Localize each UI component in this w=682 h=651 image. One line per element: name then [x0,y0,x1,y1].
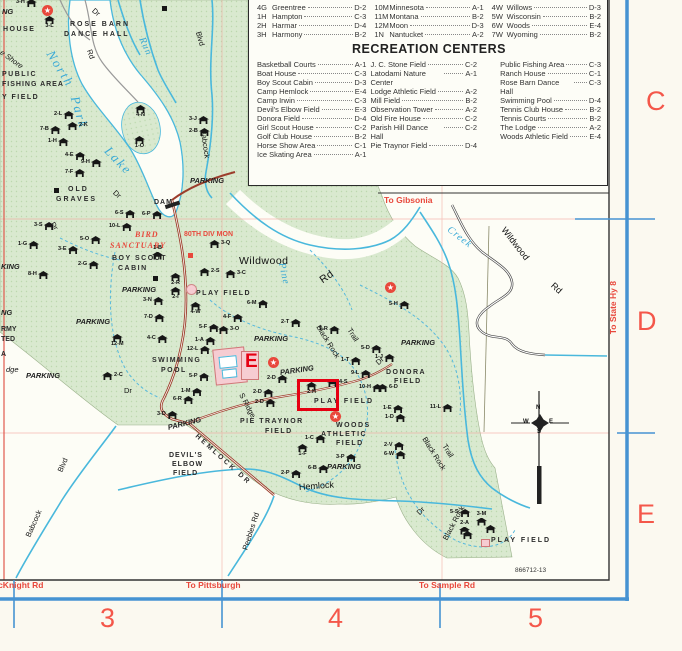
shelter-icon-1-D: 1-D [385,414,406,422]
picnic-shelter-glyph [395,414,406,422]
dot-leader [322,109,353,110]
map-label: TED [1,336,15,343]
shelter-code-label: 9-L [351,371,359,377]
shelter-code-label: 2-V [384,443,393,449]
area-code: 1H [257,12,272,21]
shelter-code-label: 4-F [223,315,231,321]
shelter-code-label: 11-L [430,405,441,411]
map-label: PARKING [122,286,156,294]
dot-leader [308,7,352,8]
shelter-icon-2-C: 2-C [102,372,123,380]
map-label: PIE TRAYNOR [240,418,304,425]
map-label: PUBLIC [2,71,37,78]
facility-name: Basketball Courts [257,60,316,69]
shelter-code-label: 1-F [298,452,306,458]
map-label: RMY [1,326,17,333]
shelter-code-label: 1-O [135,144,144,150]
monument-square-icon [188,253,193,258]
recreation-center-entry: Rose Barn Dance HallC-3 [500,78,601,96]
shelter-icon-3-O: 3-O [218,326,239,334]
map-label: ROSE BARN [70,21,130,28]
shelter-code-label: 3-L [45,24,53,30]
shelter-code-label: 2-R [171,281,180,287]
picnic-shelter-glyph [26,0,37,7]
picnic-shelter-glyph [199,128,210,136]
picnic-shelter-glyph [74,169,85,177]
star-point-of-interest-icon: ★ [268,357,279,368]
shelter-icon-2-S: 2-S [199,268,220,276]
grid-ref: C-2 [354,123,366,132]
shelter-icon-1-F: 1-F [297,444,308,458]
map-label: NG [2,8,13,16]
shelter-code-label: 3-Q [221,241,230,247]
shelter-code-label: 1-T [341,358,349,364]
picnic-shelter-glyph [350,357,361,365]
facility-name: Boy Scout Cabin [257,78,313,87]
picnic-shelter-glyph [58,138,69,146]
shelter-icon-5-F: 5-F [199,324,219,332]
map-label: KING [1,263,20,271]
grid-ref: A-1 [355,60,367,69]
shelter-code-label: 12-L [187,347,198,353]
building-square-icon [54,188,59,193]
legend-index-entry: 10MMinnesotaA-1 [374,3,483,12]
dot-leader [444,73,463,74]
shelter-code-label: 1-H [48,139,57,145]
picnic-shelter-glyph [102,372,113,380]
picnic-shelter-glyph [371,345,382,353]
grid-ref: C-3 [589,78,601,87]
shelter-code-label: 2-K [79,123,88,129]
shelter-code-label: 2-S [211,269,220,275]
highlight-box-shelter-2H[interactable] [297,379,339,411]
area-name: Minnesota [389,3,424,12]
map-label: NG [1,309,12,317]
area-code: 10M [374,3,389,12]
legend-index-entry: 3HHarmonyB-2 [257,30,366,39]
shelter-icon-2-P: 2-P [281,470,302,478]
dot-leader [302,118,352,119]
star-point-of-interest-icon: ★ [330,411,341,422]
shelter-icon-5-H: 5-H [389,301,410,309]
dot-leader [548,73,587,74]
dot-leader [438,91,463,92]
picnic-shelter-glyph [90,236,101,244]
recreation-center-entry: Parish Hill Dance HallC-2 [370,123,477,141]
dot-leader [318,64,353,65]
grid-ref: D-4 [465,141,477,150]
picnic-shelter-glyph [183,396,194,404]
recreation-center-entry: Tennis CourtsB-2 [500,114,601,123]
shelter-icon-1-A: 1-A [195,337,216,345]
area-name: Wyoming [507,30,538,39]
shelter-code-label: 3-H [16,0,25,6]
recreation-center-entry: Golf Club HouseB-2 [257,132,366,141]
picnic-shelter-glyph [154,314,165,322]
recreation-center-entry: Camp HemlockE-4 [257,87,366,96]
shelter-icon-2-D: 2-D [253,389,274,397]
shelter-icon-2-L: 2-L [54,111,74,119]
picnic-shelter-glyph [153,297,164,305]
star-point-of-interest-icon: ★ [42,5,53,16]
shelter-code-label: 6-W [384,452,394,458]
map-label: DEVIL'S [169,452,203,459]
compass-east-label: E [549,419,553,425]
star-point-of-interest-icon: ★ [385,282,396,293]
facility-name: Swimming Pool [500,96,552,105]
grid-ref: D-4 [354,114,366,123]
dot-leader [310,91,353,92]
map-label: ELBOW [172,461,203,468]
legend-index-entry: 12MMoonD-3 [374,21,483,30]
recreation-center-entry: Ranch HouseC-1 [500,69,601,78]
shelter-icon-1-E: 1-E [383,405,404,413]
recreation-center-entry: Public Fishing AreaC-3 [500,60,601,69]
dot-leader [299,25,352,26]
picnic-shelter-glyph [50,126,61,134]
facility-name: Devil's Elbow Field [257,105,320,114]
picnic-shelter-glyph [218,326,229,334]
shelter-code-label: 5-F [199,325,207,331]
dot-leader [421,16,470,17]
facility-name: Old Fire House [370,114,420,123]
picnic-shelter-glyph [290,319,301,327]
map-label: DANCE HALL [64,31,130,38]
facility-name: Tennis Club House [500,105,563,114]
shelter-code-label: 6-P [142,212,151,218]
facility-name: Boat House [257,69,296,78]
area-name: Nantucket [389,30,423,39]
recreation-center-entry: Latodami Nature CenterA-1 [370,69,477,87]
dot-leader [314,136,353,137]
picnic-shelter-glyph [462,531,473,539]
grid-ref: C-3 [354,69,366,78]
picnic-shelter-glyph [377,384,388,392]
shelter-code-label: 6-S [115,211,124,217]
shelter-icon-4-N: 4-N [135,105,146,119]
shelter-icon-3-H: 3-H [16,0,37,7]
recreation-center-entry: The LodgeA-2 [500,123,601,132]
grid-ref: A-1 [472,3,484,12]
dot-leader [423,118,463,119]
shelter-code-label: 2-G [78,262,87,268]
shelter-icon-2-I: 2-I [170,287,181,301]
grid-ref: A-1 [355,150,367,159]
dot-leader [534,7,587,8]
picnic-shelter-glyph [28,241,39,249]
map-label: 80TH DIV MON [184,231,233,238]
facility-name: Latodami Nature Center [370,69,442,87]
grid-ref: D-3 [589,3,601,12]
shelter-code-label: 3-D [157,412,166,418]
shelter-code-label: 2-A [460,521,469,527]
map-label: PARKING [76,318,110,326]
recreation-center-entry: Donora FieldD-4 [257,114,366,123]
dot-leader [410,25,469,26]
grid-ref: A-2 [472,30,484,39]
recreation-center-entry: Pie Traynor FieldD-4 [370,141,477,150]
area-code: 7W [492,30,507,39]
map-label: FIELD [336,440,364,447]
picnic-shelter-glyph [167,411,178,419]
grid-ref: D-3 [472,21,484,30]
shelter-icon-3-S: 3-S [34,222,55,230]
dot-leader [540,34,587,35]
shelter-code-label: 2-T [281,320,289,326]
shelter-code-label: 7-D [144,315,153,321]
area-code: 2H [257,21,272,30]
map-label: dge [6,366,19,374]
picnic-shelter-glyph [460,509,471,517]
map-label: FIELD [265,428,293,435]
shelter-icon-3-D: 3-D [157,411,178,419]
area-code: 12M [374,21,389,30]
dot-leader [314,154,353,155]
grid-ref: B-2 [355,30,367,39]
shelter-code-label: 8-H [28,272,37,278]
shelter-icon-1-T: 1-T [341,357,361,365]
shelter-code-label: 10-H [359,385,371,391]
shelter-icon-7-D: 7-D [144,314,165,322]
map-label: PARKING [26,372,60,380]
shelter-code-label: 1-G [18,242,27,248]
shelter-code-label: 2-I [172,295,178,301]
shelter-icon-3-J: 3-J [189,116,209,124]
picnic-shelter-glyph [277,375,288,383]
shelter-code-label: 5-D [361,346,370,352]
shelter-icon-5-D: 5-D [361,345,382,353]
area-code: 4G [257,3,272,12]
shelter-icon-1-B: 1-B [152,246,163,260]
legend-index-entry: 1NNantucketA-2 [374,30,483,39]
dot-leader [554,100,587,101]
shelter-code-label: 1-E [383,406,392,412]
building-square-icon [153,276,158,281]
legend-index-entry: 11MMontanaB-2 [374,12,483,21]
shelter-icon-5-O: 5-O [80,236,101,244]
grid-ref: C-3 [354,12,366,21]
dot-leader [298,73,352,74]
shelter-code-label: 9-H [81,160,90,166]
facility-name: Ranch House [500,69,545,78]
area-name: Hampton [272,12,302,21]
grid-ref: C-2 [465,123,477,132]
legend-index-entry: 7WWyomingB-2 [492,30,601,39]
grid-ref: C-1 [354,141,366,150]
shelter-icon-5-S: 5-S [450,509,471,517]
map-label: 866712-13 [515,568,546,575]
dot-leader [297,100,352,101]
shelter-code-label: 1-R [319,327,328,333]
shelter-code-label: 3-J [189,117,197,123]
dot-leader [538,127,587,128]
facility-name: Horse Show Area [257,141,315,150]
shelter-code-label: 4-W [190,310,200,316]
shelter-code-label: 3-O [230,327,239,333]
shelter-code-label: 10-L [109,224,120,230]
facility-name: Observation Tower [370,105,432,114]
shelter-icon-6-M: 6-M [247,300,268,308]
map-label: PARKING [401,339,435,347]
picnic-shelter-glyph [442,404,453,412]
shelter-code-label: 6-M [247,301,256,307]
grid-ref: B-2 [589,105,601,114]
picnic-shelter-glyph [360,370,371,378]
shelter-code-label: 7-F [65,170,73,176]
shelter-icon-8-H: 8-H [28,271,49,279]
area-name: Montana [389,12,418,21]
map-label: To State Hy 8 [609,281,618,334]
legend-index-entry: 5WWisconsinB-2 [492,12,601,21]
shelter-code-label: 3-N [143,298,152,304]
shelter-code-label: 6-R [173,397,182,403]
compass-north-label: N [536,405,540,411]
facility-name: Tennis Courts [500,114,546,123]
shelter-code-label: 3-M [477,512,486,518]
facility-name: Golf Club House [257,132,312,141]
shelter-code-label: 2-D [253,390,262,396]
shelter-code-label: 4-S [339,380,348,386]
map-label: CABIN [118,265,148,272]
grid-ref: C-1 [589,69,601,78]
shelter-icon-2-T: 2-T [281,319,301,327]
recreation-center-entry: Girl Scout HouseC-2 [257,123,366,132]
recreation-center-entry: Observation TowerA-2 [370,105,477,114]
dot-leader [565,109,587,110]
map-label: PARKING [190,177,224,185]
dot-leader [548,118,587,119]
shelter-icon-1-O: 1-O [134,136,145,150]
compass-south-label: S [537,429,541,435]
grid-ref: E-3 [355,105,367,114]
grid-ref: A-2 [589,123,601,132]
legend-box: 4GGreentreeD-21HHamptonC-32HHarmarD-43HH… [248,0,608,186]
legend-index: 4GGreentreeD-21HHamptonC-32HHarmarD-43HH… [257,3,601,39]
legend-index-entry: 4GGreentreeD-2 [257,3,366,12]
shelter-icon-10-L: 10-L [109,223,132,231]
picnic-shelter-glyph [329,326,340,334]
map-label: SWIMMING [152,357,201,364]
grid-letter-D: D [637,308,657,335]
grid-ref: D-3 [354,78,366,87]
recreation-center-entry: Woods Athletic FieldE-4 [500,132,601,141]
facility-name: Rose Barn Dance Hall [500,78,572,96]
shelter-icon-4-C: 4-C [147,335,168,343]
grid-ref: E-4 [355,87,367,96]
shelter-code-label: 4-E [65,153,74,159]
picnic-shelter-glyph [91,159,102,167]
shelter-icon-6-B: 6-B [308,465,329,473]
grid-ref: D-4 [589,96,601,105]
dot-leader [532,25,587,26]
shelter-icon [485,525,497,533]
facility-name: Camp Irwin [257,96,295,105]
area-code: 3H [257,30,272,39]
grid-ref: E-4 [589,132,601,141]
picnic-shelter-glyph [263,389,274,397]
scale-bar [537,466,542,504]
shelter-icon-6-P: 6-P [142,211,163,219]
facility-name: Donora Field [257,114,300,123]
shelter-icon-1-H: 1-H [48,138,69,146]
shelter-code-label: 5-S [450,510,459,516]
map-label: PARKING [327,463,361,471]
grid-ref: E-4 [589,21,601,30]
dot-leader [570,136,587,137]
area-name: Moon [389,21,408,30]
legend-index-entry: 4WWillowsD-3 [492,3,601,12]
picnic-shelter-glyph [199,346,210,354]
recreation-center-entry: Boat HouseC-3 [257,69,366,78]
shelter-code-label: 1-A [195,338,204,344]
grid-ref: A-2 [465,105,477,114]
shelter-icon-6-S: 6-S [115,210,136,218]
picnic-shelter-glyph [157,335,168,343]
shelter-icon-2-D: 2-D [267,375,288,383]
shelter-icon-9-L: 9-L [351,370,371,378]
shelter-icon-2-R: 2-R [170,273,181,287]
shelter-icon [462,531,474,539]
picnic-shelter-glyph [38,271,49,279]
recreation-center-entry: Boy Scout CabinD-3 [257,78,366,87]
area-name: Harmar [272,21,297,30]
grid-ref: B-2 [465,96,477,105]
shelter-icon-6-R: 6-R [173,396,194,404]
dot-leader [315,82,353,83]
picnic-shelter-glyph [265,399,276,407]
shelter-icon-6-W: 6-W [384,451,406,459]
shelter-icon-7-B: 7-B [40,126,61,134]
facility-name: Pie Traynor Field [370,141,427,150]
shelter-code-label: 3-E [58,247,67,253]
legend-index-entry: 1HHamptonC-3 [257,12,366,21]
shelter-code-label: 6-D [389,385,398,391]
map-label: Y FIELD [2,94,39,101]
dot-leader [428,64,463,65]
shelter-code-label: 12-M [111,342,124,348]
shelter-code-label: 3-S [34,223,43,229]
recreation-center-entry: Ice Skating AreaA-1 [257,150,366,159]
area-code: 1N [374,30,389,39]
map-label: BIRD [135,231,159,239]
map-label: WOODS [336,422,371,429]
picnic-shelter-glyph [125,210,136,218]
shelter-code-label: 3-C [237,271,246,277]
grid-number-5: 5 [528,605,543,632]
recreation-center-entry: Horse Show AreaC-1 [257,141,366,150]
grid-number-4: 4 [328,605,343,632]
dot-leader [566,64,587,65]
facility-name: Mill Field [370,96,400,105]
dot-leader [426,7,470,8]
legend-index-entry: 6WWoodsE-4 [492,21,601,30]
dot-leader [317,145,352,146]
shelter-code-label: 2-D [255,400,264,406]
picnic-shelter-glyph [68,246,79,254]
grid-letter-C: C [646,88,666,115]
map-label: To Sample Rd [419,581,475,590]
picnic-shelter-glyph [257,300,268,308]
shelter-icon-12-M: 12-M [111,334,124,348]
shelter-code-label: 3-P [336,455,345,461]
area-name: Harmony [272,30,302,39]
recreation-centers-list: Basketball CourtsA-1Boat HouseC-3Boy Sco… [257,60,601,159]
shelter-code-label: 1-D [385,415,394,421]
legend-index-entry: 2HHarmarD-4 [257,21,366,30]
shelter-icon-4-W: 4-W [190,302,201,316]
shelter-icon-7-F: 7-F [65,169,85,177]
grid-ref: C-3 [354,96,366,105]
